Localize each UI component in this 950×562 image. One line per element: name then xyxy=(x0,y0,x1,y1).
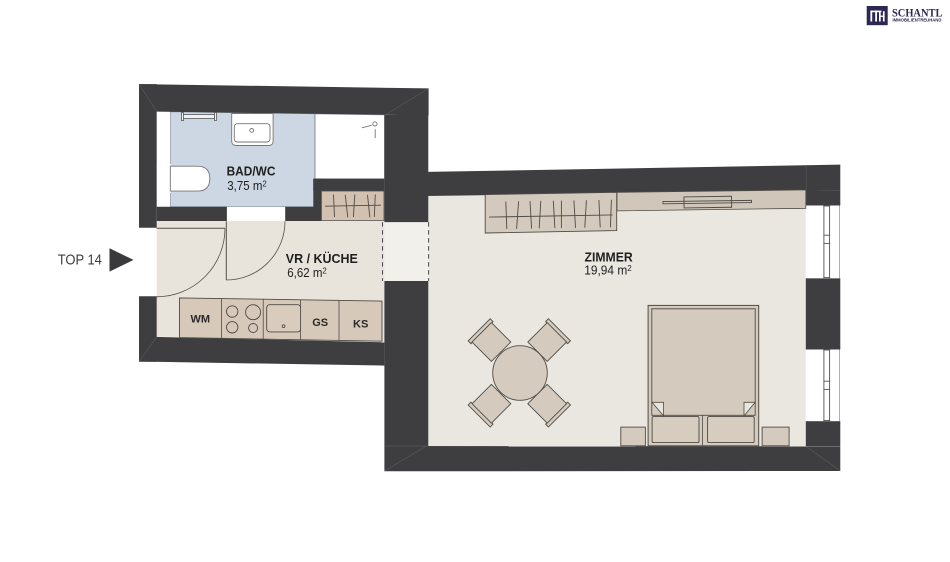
svg-text:WM: WM xyxy=(191,314,211,326)
svg-text:6,62 m2: 6,62 m2 xyxy=(287,265,327,280)
svg-text:KS: KS xyxy=(353,318,368,330)
svg-text:19,94 m2: 19,94 m2 xyxy=(584,263,632,278)
svg-text:VR / KÜCHE: VR / KÜCHE xyxy=(286,251,358,266)
svg-text:BAD/WC: BAD/WC xyxy=(227,164,276,179)
svg-text:TOP 14: TOP 14 xyxy=(58,253,102,269)
svg-text:GS: GS xyxy=(312,317,328,329)
svg-text:ZIMMER: ZIMMER xyxy=(585,250,634,265)
svg-text:3,75 m2: 3,75 m2 xyxy=(227,178,267,193)
svg-text:IMMOBILIENTREUHAND: IMMOBILIENTREUHAND xyxy=(893,17,942,22)
